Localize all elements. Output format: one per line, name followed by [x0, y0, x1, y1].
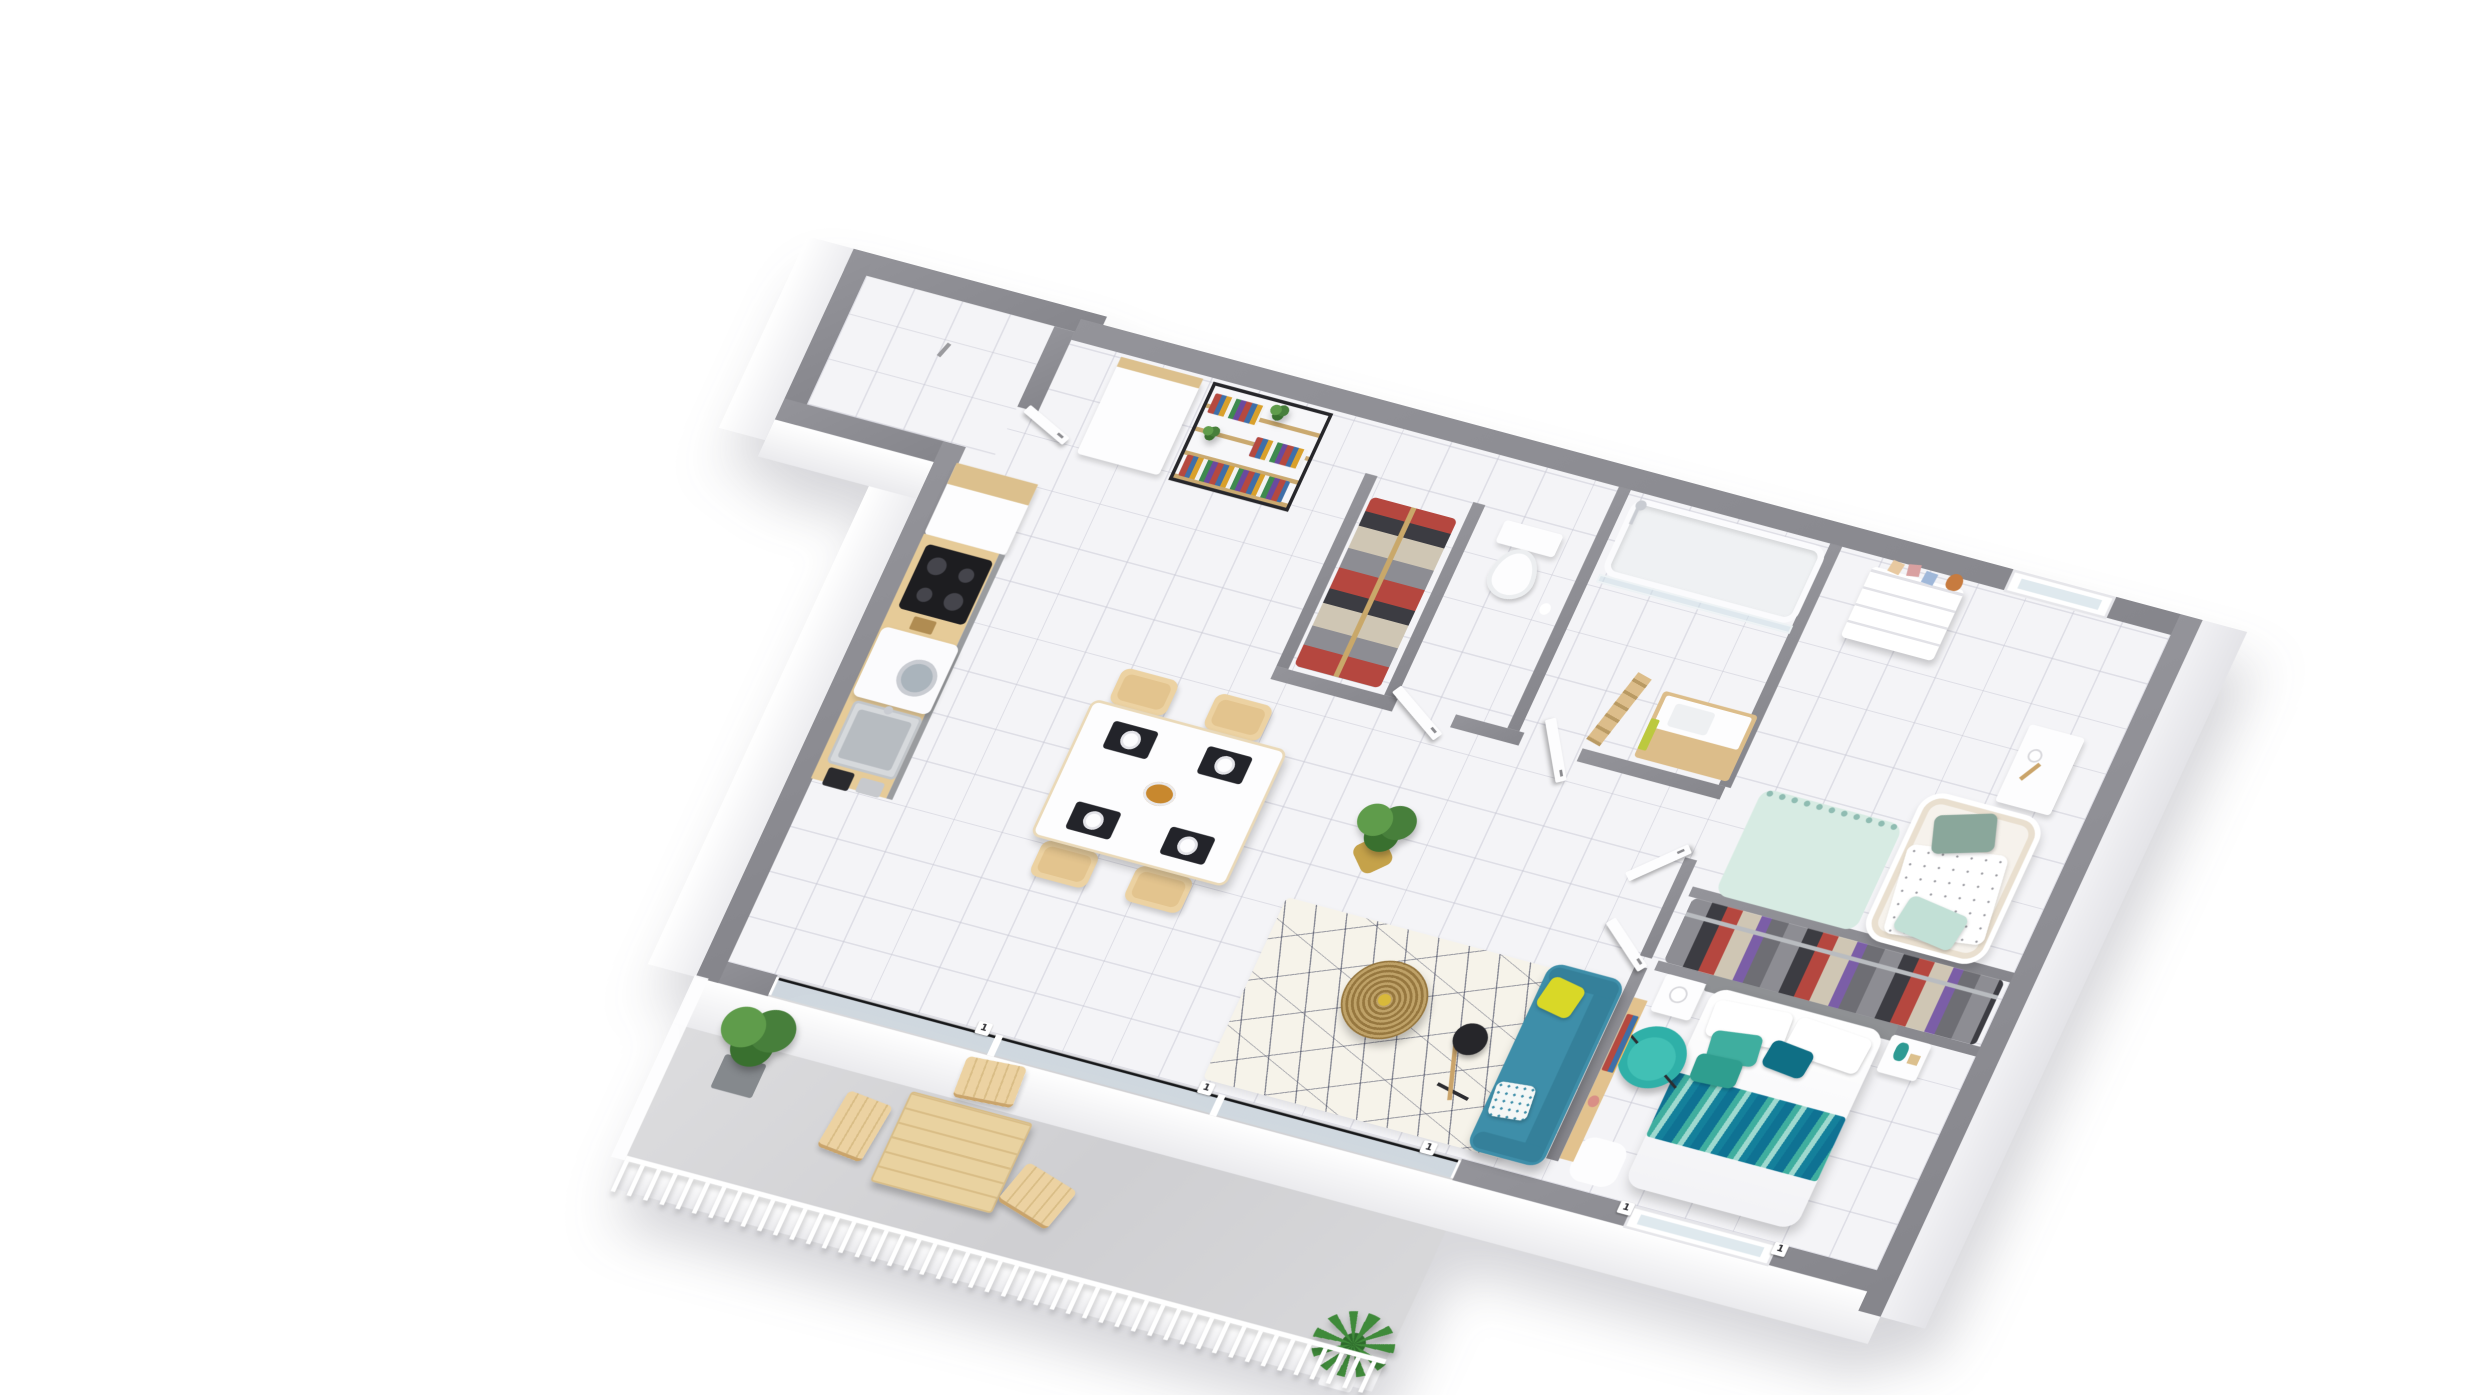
screenshot-canvas: 11111: [0, 0, 2480, 1395]
page: { "meta": { "description": "Isometric 3D…: [0, 0, 2480, 1395]
crib-pillow: [1931, 813, 1998, 854]
